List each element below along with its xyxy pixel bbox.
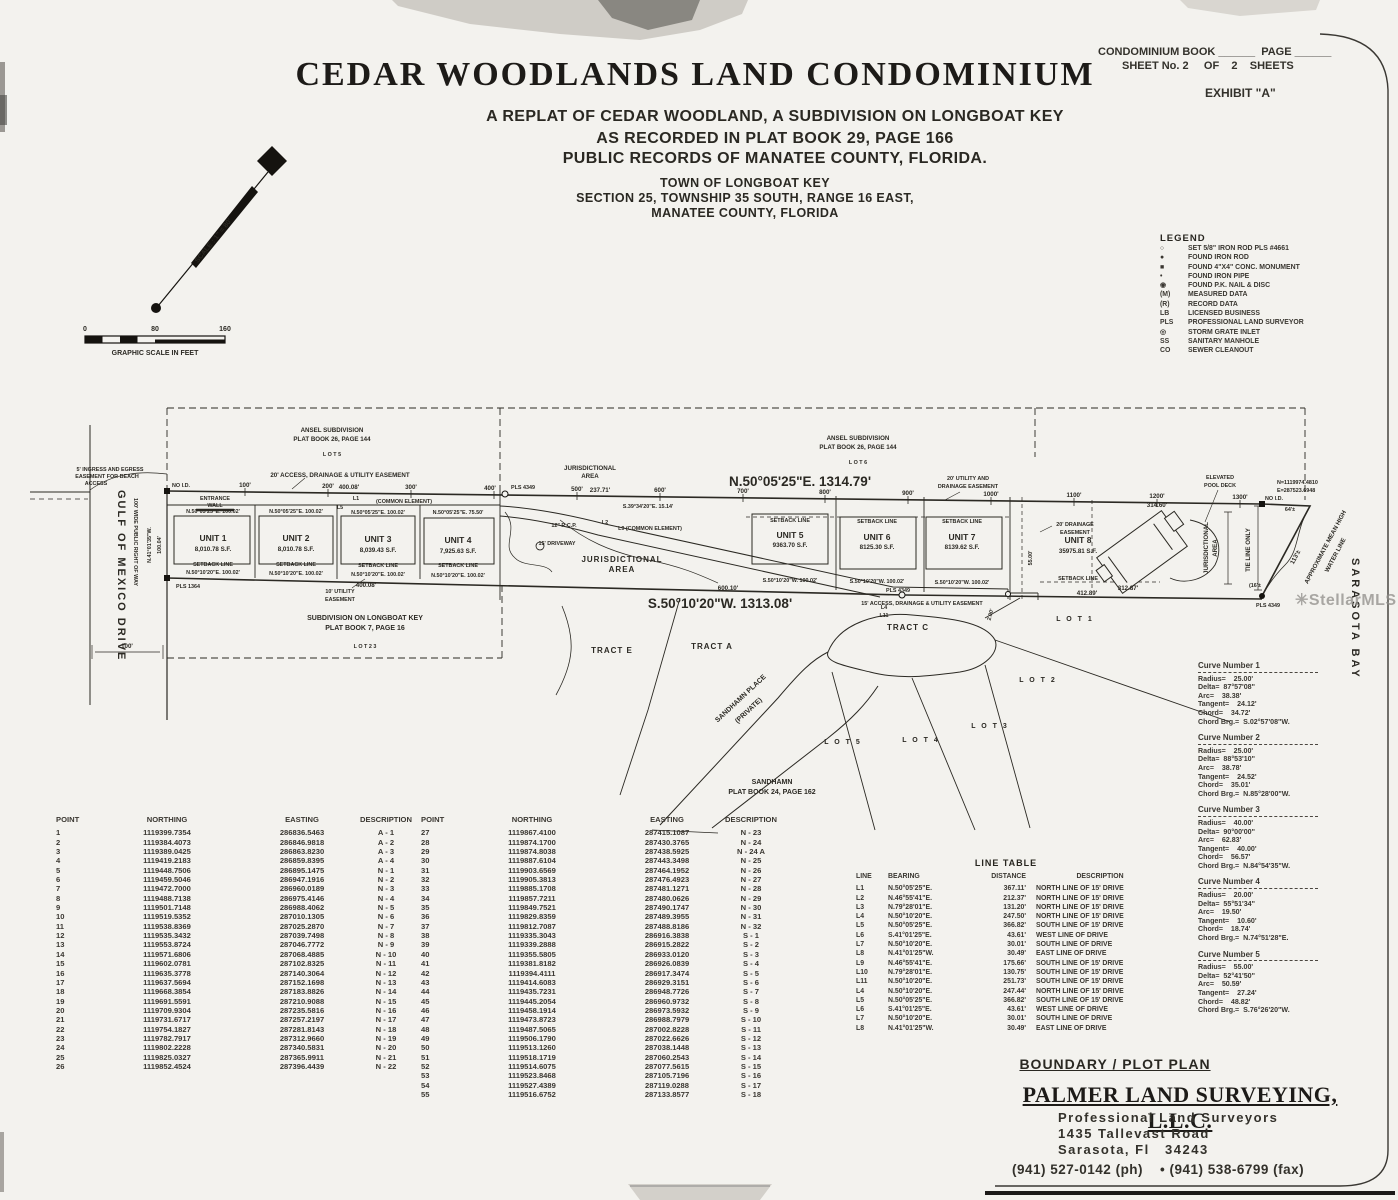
plat-label: S.39°34'20"E. 15.14' [623,504,673,510]
table-cell: 29 [415,847,453,856]
table-cell: 1119668.3854 [88,987,246,996]
table-cell: 286929.3151 [611,978,723,987]
table-cell: 287102.8325 [246,959,358,968]
table-row: 251119825.0327287365.9911N - 21 [50,1053,420,1062]
table-cell: 1119754.1827 [88,1025,246,1034]
table-cell: 287415.1087 [611,828,723,837]
table-row: Radius= 40.00' [1198,819,1358,828]
table-row: Delta= 52°41'50" [1198,972,1358,981]
table-cell: Tangent= 27.24' [1198,989,1257,997]
table-cell: 43.61' [972,931,1036,940]
table-cell: Tangent= 24.52' [1198,773,1257,781]
table-cell: 287039.7498 [246,931,358,940]
scale-tick: 0 [83,326,87,333]
table-row: 201119709.9304287235.5816N - 16 [50,1006,420,1015]
table-cell: N - 8 [358,931,414,940]
station-tick: 500' [571,486,583,493]
table-row: 161119635.3778287140.3064N - 12 [50,969,420,978]
table-cell: 287340.5831 [246,1043,358,1052]
table-cell: 1119571.6806 [88,950,246,959]
plat-label: 15' ACCESS, DRAINAGE & UTILITY EASEMENT [861,601,983,607]
table-row: 181119668.3854287183.8826N - 14 [50,987,420,996]
table-cell: 287489.3955 [611,912,723,921]
table-row: 321119905.3813287476.4923N - 27 [415,875,785,884]
table-cell: 30.49' [972,1024,1036,1033]
firm-phone: (941) 527-0142 (ph) • (941) 538-6799 (fa… [1012,1162,1304,1177]
unit-5-bottom-bearing: S.50°10'20"W. 100.02' [763,578,818,584]
table-cell: Chord Brg.= N.74°51'28"E. [1198,934,1288,942]
curve-table-3: Curve Number 3 Radius= 40.00'Delta= 90°0… [1198,806,1358,870]
table-cell: Chord Brg.= S.76°26'20"W. [1198,1006,1290,1014]
plat-label: ANSEL SUBDIVISION [301,427,364,434]
station-tick: 1100' [1067,492,1082,499]
point-table-header: POINT NORTHING EASTING DESCRIPTION [50,815,420,824]
unit-7-bottom-bearing: S.50°10'20"W. 100.02' [935,580,990,586]
plat-label: 5' INGRESS AND EGRESS [77,467,144,473]
plat-label: L5 [337,505,343,511]
table-cell: N - 18 [358,1025,414,1034]
plat-label: 20' DRAINAGE [1056,522,1094,528]
table-row: L3N.79°28'01"E.131.20'NORTH LINE OF 15' … [856,903,1166,912]
table-row: Chord Brg.= N.74°51'28"E. [1198,934,1358,943]
table-row: Arc= 19.50' [1198,908,1358,917]
plat-label: PLS 4349 [1256,603,1280,609]
table-row: Tangent= 24.12' [1198,700,1358,709]
table-row: L5N.50°05'25"E.366.82'SOUTH LINE OF 15' … [856,996,1166,1005]
table-cell: 1119501.7148 [88,903,246,912]
table-cell: 287235.5816 [246,1006,358,1015]
table-row: L9N.46°55'41"E.175.66'SOUTH LINE OF 15' … [856,959,1166,968]
table-cell: Chord= 35.01' [1198,781,1250,789]
table-cell: S - 10 [723,1015,779,1024]
table-row: 381119335.3043286916.3838S - 1 [415,931,785,940]
gulf-of-mexico-drive-label: GULF OF MEXICO DRIVE [115,490,127,661]
setback-line-label: SETBACK LINE [276,562,316,568]
table-cell: 1119553.8724 [88,940,246,949]
table-cell: N.79°28'01"E. [888,968,972,977]
station-tick: 1200' [1149,493,1165,500]
table-cell: S - 17 [723,1081,779,1090]
table-row: 521119514.6075287077.5615S - 15 [415,1062,785,1071]
plat-label: PLAT BOOK 7, PAGE 16 [325,625,405,632]
table-cell: 286846.9818 [246,838,358,847]
table-row: 371119812.7087287488.8186N - 32 [415,922,785,931]
table-cell: 1119384.4073 [88,838,246,847]
setback-line-label: SETBACK LINE [770,518,810,524]
plat-label: 100' [121,643,133,650]
table-cell: 247.44' [972,987,1036,996]
table-cell: 367.11' [972,884,1036,893]
plat-label: JURISDICTIONAL [564,465,616,472]
plat-label: JURISDICTIONAL [581,555,662,564]
lot-1-label: L O T 1 [1056,616,1094,623]
table-row: Tangent= 24.52' [1198,773,1358,782]
table-cell: 32 [415,875,453,884]
table-cell: L4 [856,987,888,996]
table-cell: 26 [50,1062,88,1071]
column-header: DISTANCE [972,872,1036,881]
table-cell: 366.82' [972,996,1036,1005]
plat-label: L2 [602,520,608,526]
table-row: L4N.50°10'20"E.247.44'NORTH LINE OF 15' … [856,987,1166,996]
table-row: 541119527.4389287119.0288S - 17 [415,1081,785,1090]
table-row: Chord Brg.= N.84°54'35"W. [1198,862,1358,871]
table-cell: N - 16 [358,1006,414,1015]
station-tick: 1000' [983,491,999,498]
table-row: L5N.50°05'25"E.366.82'SOUTH LINE OF 15' … [856,921,1166,930]
table-cell: Chord= 34.72' [1198,709,1250,717]
table-cell: 28 [415,838,453,847]
table-cell: 13 [50,940,88,949]
scale-tick: 160 [219,326,231,333]
plat-label: 10' UTILITY [325,589,355,595]
unit-6-bottom-bearing: S.50°10'20"W. 100.02' [850,579,905,585]
table-cell: N.50°05'25"E. [888,884,972,893]
plat-label: L9 (COMMON ELEMENT) [618,526,682,532]
table-cell: L11 [856,977,888,986]
table-cell: 366.82' [972,921,1036,930]
table-cell: 1119514.6075 [453,1062,611,1071]
plat-label: 2.00' [987,608,996,621]
table-cell: N - 7 [358,922,414,931]
table-cell: 1119731.6717 [88,1015,246,1024]
table-cell: 1119389.0425 [88,847,246,856]
unit-4-label: UNIT 4 [445,535,472,545]
table-cell: Chord= 56.57' [1198,853,1250,861]
point-table-right: POINT NORTHING EASTING DESCRIPTION 27111… [415,815,785,1099]
table-row: L11N.50°10'20"E.251.73'SOUTH LINE OF 15'… [856,977,1166,986]
table-cell: N - 6 [358,912,414,921]
table-row: Arc= 62.83' [1198,836,1358,845]
table-cell: 1119506.1790 [453,1034,611,1043]
table-cell: 286926.0839 [611,959,723,968]
table-cell: 1119459.5046 [88,875,246,884]
table-cell: N - 23 [723,828,779,837]
table-cell: 287010.1305 [246,912,358,921]
table-cell: SOUTH LINE OF 15' DRIVE [1036,996,1164,1005]
plat-label: ACCESS [85,481,108,487]
table-cell: 1119903.6569 [453,866,611,875]
point-table-left: POINT NORTHING EASTING DESCRIPTION 11119… [50,815,420,1071]
table-cell: 287430.3765 [611,838,723,847]
table-cell: 1119867.4100 [453,828,611,837]
curve-table-2: Curve Number 2 Radius= 25.00'Delta= 88°5… [1198,734,1358,798]
table-cell: 1119857.7211 [453,894,611,903]
table-row: L8N.41°01'25"W.30.49'EAST LINE OF DRIVE [856,1024,1166,1033]
table-row: Chord= 18.74' [1198,925,1358,934]
table-cell: 34 [415,894,453,903]
table-row: 361119829.8359287489.3955N - 31 [415,912,785,921]
table-cell: 1119519.5352 [88,912,246,921]
table-row: L7N.50°10'20"E.30.01'SOUTH LINE OF DRIVE [856,1014,1166,1023]
table-cell: L9 [856,959,888,968]
table-row: Radius= 20.00' [1198,891,1358,900]
firm-line-1: Professional Land Surveyors [1058,1110,1278,1125]
table-cell: N.41°01'25"W. [888,1024,972,1033]
table-cell: 287077.5615 [611,1062,723,1071]
table-cell: S - 15 [723,1062,779,1071]
plat-label: N.41°01'35"W. [147,527,153,563]
table-cell: 38 [415,931,453,940]
table-cell: SOUTH LINE OF DRIVE [1036,940,1164,949]
curve-table-4: Curve Number 4 Radius= 20.00'Delta= 55°5… [1198,878,1358,942]
table-row: 21119384.4073286846.9818A - 2 [50,838,420,847]
table-cell: 287002.8228 [611,1025,723,1034]
table-cell: 42 [415,969,453,978]
south-bearing-label: S.50°10'20"W. 1313.08' [648,596,792,611]
table-row: Radius= 25.00' [1198,675,1358,684]
table-row: 551119516.6752287133.8577S - 18 [415,1090,785,1099]
unit-1-area: 8,010.78 S.F. [195,546,232,553]
table-cell: 50 [415,1043,453,1052]
table-row: Arc= 50.59' [1198,980,1358,989]
table-cell: 286948.7726 [611,987,723,996]
table-cell: S - 13 [723,1043,779,1052]
table-row: L10N.79°28'01"E.130.75'SOUTH LINE OF 15'… [856,968,1166,977]
table-cell: N - 11 [358,959,414,968]
table-cell: 1119691.5591 [88,997,246,1006]
table-cell: 15 [50,959,88,968]
table-cell: N - 32 [723,922,779,931]
table-row: L1N.50°05'25"E.367.11'NORTH LINE OF 15' … [856,884,1166,893]
table-cell: 287476.4923 [611,875,723,884]
plat-label: 100' WIDE PUBLIC RIGHT OF WAY [132,498,138,586]
table-cell: 287312.9660 [246,1034,358,1043]
table-cell: S - 6 [723,978,779,987]
plat-label: AREA [1212,539,1219,557]
table-cell: 1119602.0781 [88,959,246,968]
curve-tables: Curve Number 1 Radius= 25.00'Delta= 87°5… [1198,662,1358,1023]
unit-2-top-bearing: N.50°05'25"E. 100.02' [269,509,323,515]
table-cell: 287365.9911 [246,1053,358,1062]
table-cell: 41 [415,959,453,968]
north-arrow-scale-label: SCALE : 1" = 80' [194,217,234,264]
table-cell: 1119535.3432 [88,931,246,940]
unit-7-area: 8139.62 S.F. [945,544,980,551]
table-row: Delta= 90°00'00" [1198,828,1358,837]
curve-table-title: Curve Number 1 [1198,662,1358,671]
table-cell: 1119802.2228 [88,1043,246,1052]
table-cell: N - 22 [358,1062,414,1071]
table-cell: N - 24 A [723,847,779,856]
table-cell: SOUTH LINE OF 15' DRIVE [1036,968,1164,977]
plat-labels: ANSEL SUBDIVISION PLAT BOOK 26, PAGE 144… [75,427,1361,796]
table-cell: Chord Brg.= N.84°54'35"W. [1198,862,1290,870]
plat-label: 312.87' [1118,585,1139,592]
table-cell: N - 29 [723,894,779,903]
table-row: Tangent= 10.60' [1198,917,1358,926]
table-cell: Chord Brg.= S.02°57'08"W. [1198,718,1290,726]
table-cell: 287480.0626 [611,894,723,903]
table-cell: 30 [415,856,453,865]
plat-linework [30,408,1310,833]
unit-3-label: UNIT 3 [365,534,392,544]
table-cell: 1119394.4111 [453,969,611,978]
table-cell: SOUTH LINE OF DRIVE [1036,1014,1164,1023]
lot-4-label: L O T 4 [902,737,940,744]
table-cell: Arc= 62.83' [1198,836,1241,844]
table-cell: S - 9 [723,1006,779,1015]
table-cell: 1119874.1700 [453,838,611,847]
table-row: 391119339.2888286915.2822S - 2 [415,940,785,949]
table-cell: 286836.5463 [246,828,358,837]
table-cell: N - 14 [358,987,414,996]
point-table-left-rows: 11119399.7354286836.5463A - 121119384.40… [50,828,420,1071]
tract-e-label: TRACT E [591,646,633,655]
table-row: 461119458.1914286973.5932S - 9 [415,1006,785,1015]
table-row: Chord= 48.82' [1198,998,1358,1007]
table-row: 101119519.5352287010.1305N - 6 [50,912,420,921]
plat-label: ANSEL SUBDIVISION [827,435,890,442]
table-cell: 286975.4146 [246,894,358,903]
table-cell: 286863.8230 [246,847,358,856]
table-cell: 287481.1271 [611,884,723,893]
stellar-mls-watermark: ✳StellarMLS [1295,590,1397,610]
table-cell: 48 [415,1025,453,1034]
plat-label: 15' DRIVEWAY [538,541,575,547]
table-cell: N - 4 [358,894,414,903]
column-header: DESCRIPTION [1036,872,1164,881]
table-cell: 287281.8143 [246,1025,358,1034]
table-row: 421119394.4111286917.3474S - 5 [415,969,785,978]
table-cell: EAST LINE OF DRIVE [1036,949,1164,958]
table-cell: 287060.2543 [611,1053,723,1062]
table-cell: L7 [856,940,888,949]
table-cell: 251.73' [972,977,1036,986]
plan-type-title: BOUNDARY / PLOT PLAN [985,1056,1245,1072]
table-row: 151119602.0781287102.8325N - 11 [50,959,420,968]
plat-label: 400.08' [339,484,360,491]
table-cell: 30.01' [972,1014,1036,1023]
point-table-header: POINT NORTHING EASTING DESCRIPTION [415,815,785,824]
table-cell: 1119885.1708 [453,884,611,893]
firm-line-3: Sarasota, Fl 34243 [1058,1142,1209,1157]
table-cell: N - 10 [358,950,414,959]
table-cell: 16 [50,969,88,978]
table-cell: 286916.3838 [611,931,723,940]
plat-label: PLAT BOOK 24, PAGE 162 [728,789,815,796]
plat-label: L O T 6 [849,460,867,466]
table-cell: 287488.8186 [611,922,723,931]
station-tick: 400' [484,485,496,492]
table-cell: Delta= 88°53'10" [1198,755,1255,763]
plat-label: 237.71' [590,487,611,494]
table-cell: Radius= 25.00' [1198,747,1253,755]
table-cell: N.50°10'20"E. [888,977,972,986]
table-cell: WEST LINE OF DRIVE [1036,931,1164,940]
table-cell: L6 [856,931,888,940]
table-cell: 1119458.1914 [453,1006,611,1015]
plat-label: EASEMENT [325,597,356,603]
plat-label: 600.10' [718,585,739,592]
table-cell: SOUTH LINE OF 15' DRIVE [1036,959,1164,968]
table-cell: Delta= 52°41'50" [1198,972,1255,980]
column-header: NORTHING [88,815,246,824]
table-cell: 53 [415,1071,453,1080]
table-cell: 7 [50,884,88,893]
table-cell: 1119473.8723 [453,1015,611,1024]
table-cell: 286960.9732 [611,997,723,1006]
table-cell: S.41°01'25"E. [888,931,972,940]
table-cell: 18 [50,987,88,996]
column-header: POINT [415,815,453,824]
table-cell: N - 19 [358,1034,414,1043]
table-cell: Radius= 40.00' [1198,819,1253,827]
plat-label: PLS 4349 [886,588,910,594]
table-cell: 30.49' [972,949,1036,958]
table-row: Radius= 25.00' [1198,747,1358,756]
table-cell: 1119518.1719 [453,1053,611,1062]
table-cell: 286933.0120 [611,950,723,959]
table-cell: L7 [856,1014,888,1023]
station-tick: 800' [819,489,831,496]
table-row: L6S.41°01'25"E.43.61'WEST LINE OF DRIVE [856,1005,1166,1014]
table-cell: N.50°05'25"E. [888,996,972,1005]
table-cell: SOUTH LINE OF 15' DRIVE [1036,921,1164,930]
table-row: Chord Brg.= N.85°28'00"W. [1198,790,1358,799]
table-row: 331119885.1708287481.1271N - 28 [415,884,785,893]
table-cell: 287183.8826 [246,987,358,996]
station-tick: 700' [737,488,749,495]
table-cell: 1119339.2888 [453,940,611,949]
unit-1-label: UNIT 1 [200,533,227,543]
line-table: LINE TABLE LINE BEARING DISTANCE DESCRIP… [856,858,1166,1033]
table-cell: 1119516.6752 [453,1090,611,1099]
table-cell: 287133.8577 [611,1090,723,1099]
table-cell: 11 [50,922,88,931]
unit-5-area: 9363.70 S.F. [773,542,808,549]
table-cell: Arc= 50.59' [1198,980,1241,988]
table-row: 121119535.3432287039.7498N - 8 [50,931,420,940]
table-cell: 1119709.9304 [88,1006,246,1015]
table-cell: N - 15 [358,997,414,1006]
table-cell: L5 [856,996,888,1005]
unit-1-top-bearing: N.50°05'25"E. 100.02' [186,509,240,515]
table-cell: N - 17 [358,1015,414,1024]
table-cell: 1119905.3813 [453,875,611,884]
table-cell: NORTH LINE OF 15' DRIVE [1036,987,1164,996]
table-cell: 17 [50,978,88,987]
table-cell: 37 [415,922,453,931]
table-cell: Radius= 55.00' [1198,963,1253,971]
table-row: 51119448.7506286895.1475N - 1 [50,866,420,875]
table-cell: S - 16 [723,1071,779,1080]
table-row: 71119472.7000286960.0189N - 3 [50,884,420,893]
table-row: 91119501.7148286988.4062N - 5 [50,903,420,912]
column-header: DESCRIPTION [723,815,779,824]
table-cell: 287022.6626 [611,1034,723,1043]
table-cell: Tangent= 40.00' [1198,845,1257,853]
table-cell: S - 11 [723,1025,779,1034]
station-tick: 600' [654,487,666,494]
table-cell: 1119825.0327 [88,1053,246,1062]
table-cell: 1119445.2054 [453,997,611,1006]
plat-label: 314.60' [1147,502,1168,509]
table-row: L8N.41°01'25"W.30.49'EAST LINE OF DRIVE [856,949,1166,958]
table-cell: 19 [50,997,88,1006]
plat-label: E=287523.6948 [1277,488,1315,494]
table-row: Arc= 38.78' [1198,764,1358,773]
table-cell: Tangent= 10.60' [1198,917,1257,925]
table-cell: L6 [856,1005,888,1014]
table-cell: 14 [50,950,88,959]
table-cell: 287068.4885 [246,950,358,959]
plat-label: (16'± [1249,583,1261,589]
table-row: 491119506.1790287022.6626S - 12 [415,1034,785,1043]
table-cell: Radius= 20.00' [1198,891,1253,899]
column-header: POINT [50,815,88,824]
table-cell: 8 [50,894,88,903]
